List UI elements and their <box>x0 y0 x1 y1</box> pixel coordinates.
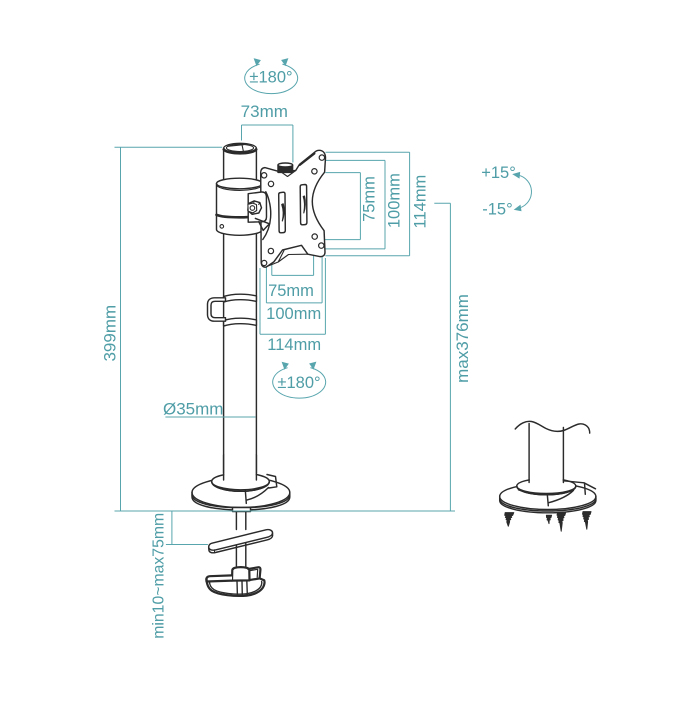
svg-text:min10~max75mm: min10~max75mm <box>151 513 168 639</box>
svg-text:114mm: 114mm <box>267 336 321 354</box>
svg-text:100mm: 100mm <box>386 173 404 228</box>
svg-text:75mm: 75mm <box>361 176 379 222</box>
svg-text:-15°: -15° <box>482 200 512 218</box>
svg-text:max376mm: max376mm <box>453 294 472 383</box>
svg-text:73mm: 73mm <box>241 102 288 121</box>
svg-text:±180°: ±180° <box>277 374 320 392</box>
svg-text:Ø35mm: Ø35mm <box>163 400 223 419</box>
svg-text:±180°: ±180° <box>249 69 292 87</box>
svg-text:+15°: +15° <box>481 164 516 182</box>
svg-text:75mm: 75mm <box>268 282 314 300</box>
svg-text:100mm: 100mm <box>266 305 321 323</box>
svg-text:399mm: 399mm <box>101 305 120 362</box>
svg-text:114mm: 114mm <box>411 175 429 229</box>
